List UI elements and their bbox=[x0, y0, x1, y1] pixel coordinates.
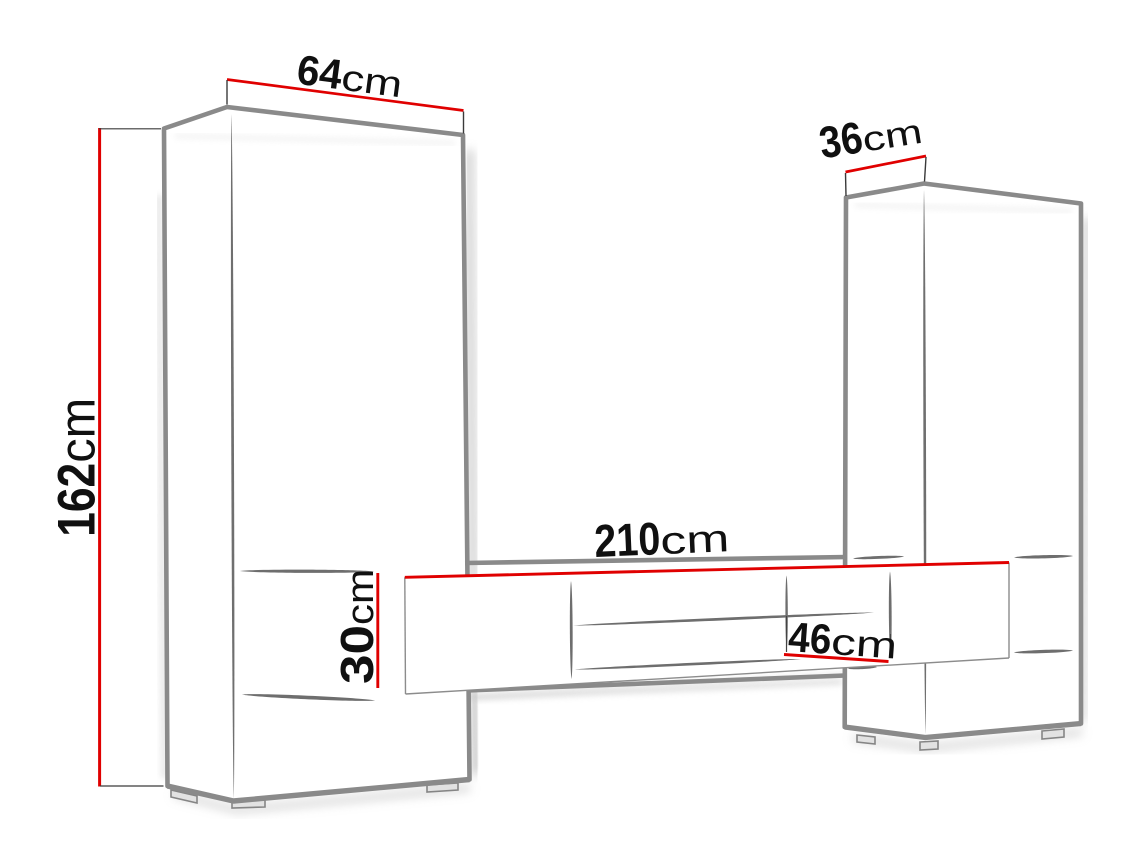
svg-text:162cm: 162cm bbox=[48, 398, 107, 537]
